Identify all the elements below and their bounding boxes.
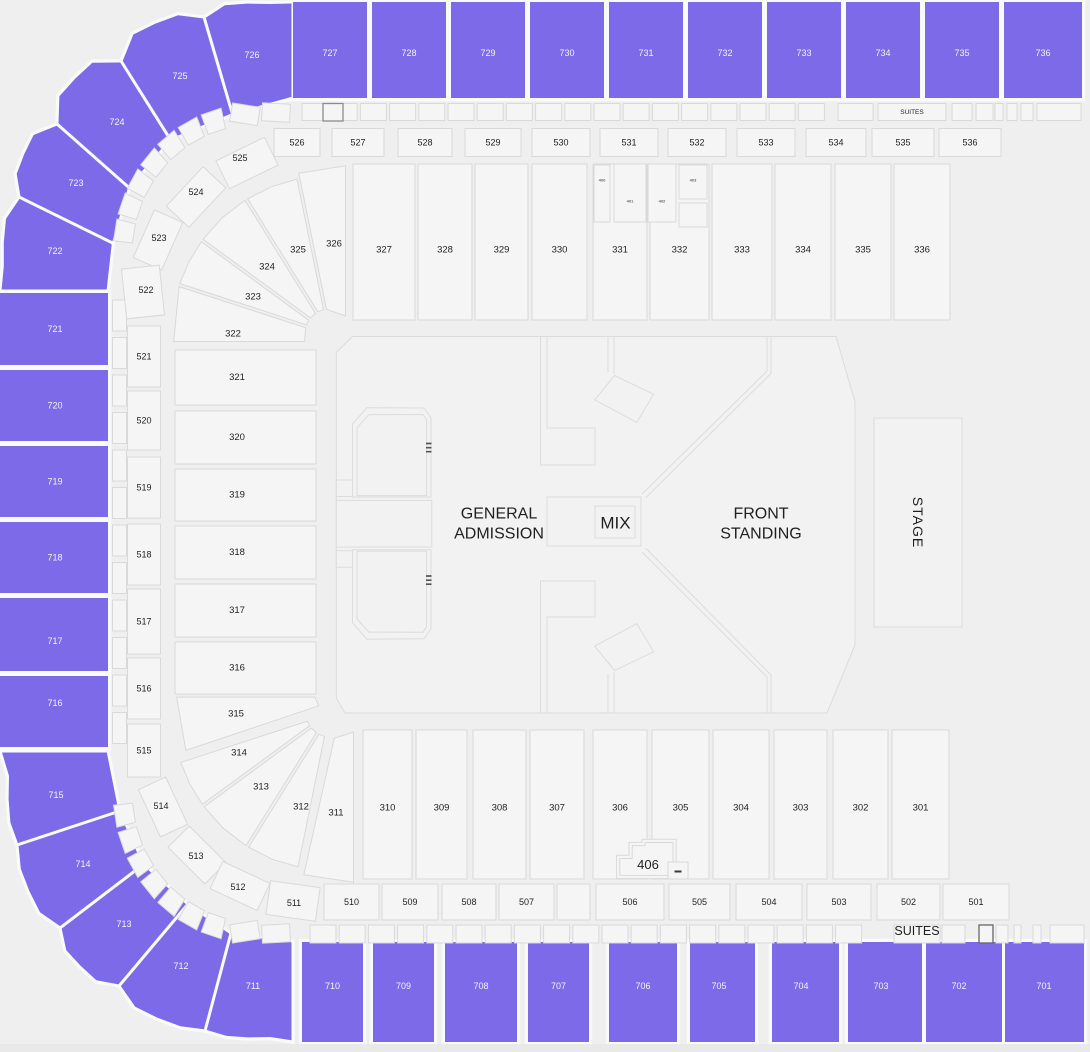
svg-text:522: 522 (138, 285, 153, 295)
svg-text:711: 711 (246, 981, 260, 991)
svg-text:406: 406 (637, 857, 659, 872)
svg-text:733: 733 (796, 48, 811, 58)
svg-text:505: 505 (692, 897, 707, 907)
svg-text:326: 326 (326, 239, 342, 250)
svg-text:FRONT: FRONT (733, 506, 788, 523)
svg-text:719: 719 (47, 477, 62, 487)
svg-text:734: 734 (875, 48, 890, 58)
svg-text:526: 526 (289, 138, 304, 148)
svg-text:706: 706 (635, 981, 650, 991)
svg-text:403: 403 (690, 178, 697, 183)
svg-text:501: 501 (968, 897, 983, 907)
svg-text:321: 321 (229, 372, 245, 383)
svg-text:510: 510 (344, 897, 359, 907)
svg-text:507: 507 (519, 897, 534, 907)
svg-text:324: 324 (259, 262, 275, 273)
svg-text:334: 334 (795, 245, 811, 256)
svg-text:SUITES: SUITES (894, 924, 939, 938)
svg-text:716: 716 (47, 698, 62, 708)
svg-text:330: 330 (552, 245, 568, 256)
svg-text:732: 732 (717, 48, 732, 58)
svg-text:310: 310 (380, 803, 396, 814)
svg-text:731: 731 (638, 48, 653, 58)
svg-text:325: 325 (290, 245, 306, 256)
svg-text:312: 312 (293, 802, 309, 813)
svg-text:519: 519 (136, 483, 151, 493)
svg-text:336: 336 (914, 245, 930, 256)
svg-text:400: 400 (599, 178, 606, 183)
svg-text:701: 701 (1036, 981, 1051, 991)
svg-text:520: 520 (136, 416, 151, 426)
svg-text:323: 323 (245, 292, 261, 303)
svg-text:301: 301 (913, 803, 929, 814)
svg-text:714: 714 (75, 859, 90, 869)
svg-text:529: 529 (485, 138, 500, 148)
svg-text:533: 533 (758, 138, 773, 148)
svg-text:304: 304 (733, 803, 749, 814)
svg-text:327: 327 (376, 245, 392, 256)
svg-text:313: 313 (253, 782, 269, 793)
svg-text:704: 704 (793, 981, 808, 991)
svg-text:517: 517 (136, 617, 151, 627)
svg-text:504: 504 (761, 897, 776, 907)
svg-text:702: 702 (951, 981, 966, 991)
svg-text:715: 715 (48, 790, 63, 800)
svg-text:331: 331 (612, 245, 628, 256)
svg-text:316: 316 (229, 663, 245, 674)
svg-text:311: 311 (328, 808, 343, 819)
svg-text:708: 708 (473, 981, 488, 991)
svg-text:518: 518 (136, 550, 151, 560)
svg-text:535: 535 (895, 138, 910, 148)
svg-text:516: 516 (136, 684, 151, 694)
svg-text:728: 728 (401, 48, 416, 58)
svg-text:713: 713 (116, 919, 131, 929)
svg-text:707: 707 (551, 981, 566, 991)
svg-text:723: 723 (68, 178, 83, 188)
svg-text:STAGE: STAGE (910, 497, 926, 548)
svg-text:722: 722 (47, 246, 62, 256)
svg-text:314: 314 (231, 748, 247, 759)
svg-text:718: 718 (47, 553, 62, 563)
svg-text:515: 515 (136, 746, 151, 756)
svg-text:523: 523 (151, 233, 166, 243)
svg-text:725: 725 (172, 71, 187, 81)
svg-text:729: 729 (480, 48, 495, 58)
svg-text:703: 703 (873, 981, 888, 991)
svg-text:525: 525 (232, 153, 247, 163)
svg-text:309: 309 (434, 803, 450, 814)
svg-text:508: 508 (461, 897, 476, 907)
svg-text:ADMISSION: ADMISSION (454, 526, 544, 543)
svg-text:502: 502 (901, 897, 916, 907)
svg-text:727: 727 (322, 48, 337, 58)
svg-text:401: 401 (627, 199, 634, 204)
svg-text:303: 303 (793, 803, 809, 814)
svg-text:503: 503 (831, 897, 846, 907)
svg-text:534: 534 (828, 138, 843, 148)
svg-text:315: 315 (228, 709, 244, 720)
svg-text:305: 305 (673, 803, 689, 814)
svg-text:724: 724 (109, 117, 124, 127)
svg-text:513: 513 (188, 851, 203, 861)
svg-text:527: 527 (350, 138, 365, 148)
svg-text:333: 333 (734, 245, 750, 256)
svg-text:712: 712 (173, 961, 188, 971)
svg-text:524: 524 (188, 187, 203, 197)
svg-text:514: 514 (153, 801, 168, 811)
svg-text:511: 511 (287, 898, 301, 908)
svg-text:721: 721 (47, 324, 62, 334)
svg-text:332: 332 (672, 245, 688, 256)
svg-text:329: 329 (494, 245, 510, 256)
svg-text:726: 726 (244, 50, 259, 60)
svg-text:320: 320 (229, 432, 245, 443)
svg-text:717: 717 (47, 636, 62, 646)
svg-text:531: 531 (621, 138, 636, 148)
svg-text:317: 317 (229, 605, 245, 616)
svg-text:SUITES: SUITES (900, 109, 924, 116)
svg-text:319: 319 (229, 490, 245, 501)
svg-text:521: 521 (136, 352, 151, 362)
svg-text:532: 532 (689, 138, 704, 148)
svg-text:512: 512 (230, 882, 245, 892)
svg-text:709: 709 (396, 981, 411, 991)
svg-text:536: 536 (962, 138, 977, 148)
svg-text:306: 306 (612, 803, 628, 814)
svg-text:710: 710 (325, 981, 340, 991)
svg-text:STANDING: STANDING (720, 526, 801, 543)
svg-text:402: 402 (659, 199, 666, 204)
svg-text:318: 318 (229, 547, 245, 558)
svg-text:302: 302 (853, 803, 869, 814)
svg-text:308: 308 (492, 803, 508, 814)
svg-text:506: 506 (622, 897, 637, 907)
svg-text:720: 720 (47, 401, 62, 411)
svg-text:530: 530 (553, 138, 568, 148)
svg-text:509: 509 (402, 897, 417, 907)
svg-text:MIX: MIX (600, 514, 630, 533)
svg-text:730: 730 (559, 48, 574, 58)
svg-text:335: 335 (855, 245, 871, 256)
svg-text:GENERAL: GENERAL (461, 506, 538, 523)
svg-text:322: 322 (225, 329, 241, 340)
svg-text:328: 328 (437, 245, 453, 256)
svg-text:705: 705 (711, 981, 726, 991)
svg-text:307: 307 (549, 803, 565, 814)
svg-text:528: 528 (417, 138, 432, 148)
svg-text:736: 736 (1035, 48, 1050, 58)
svg-text:735: 735 (954, 48, 969, 58)
